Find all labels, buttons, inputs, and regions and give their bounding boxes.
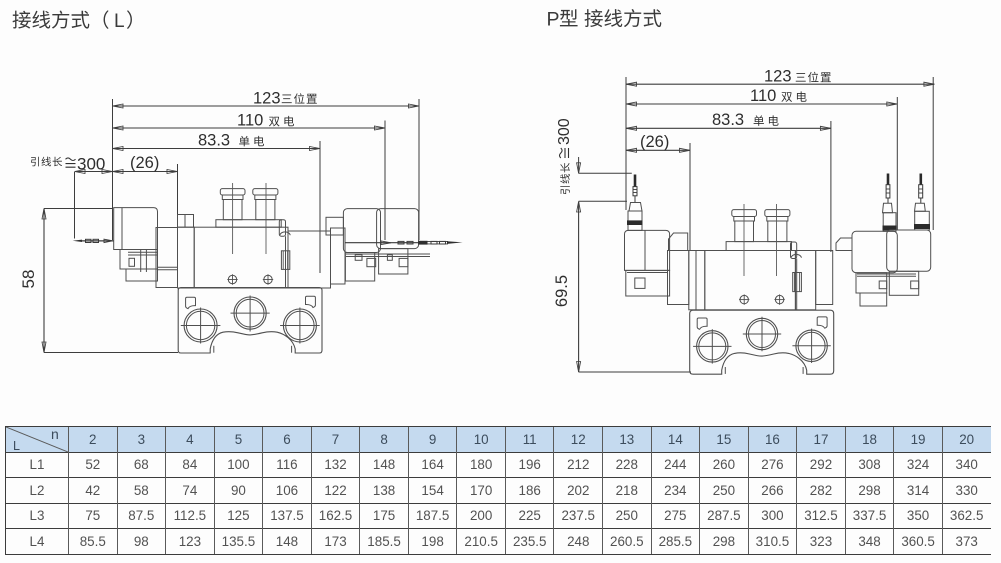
svg-text:58: 58 bbox=[19, 270, 38, 289]
svg-text:123: 123 bbox=[253, 90, 281, 108]
svg-text:300: 300 bbox=[556, 118, 573, 145]
svg-text:P: P bbox=[547, 9, 560, 31]
svg-text:300: 300 bbox=[77, 155, 105, 174]
svg-text:83.3: 83.3 bbox=[198, 132, 230, 150]
svg-text:L: L bbox=[13, 439, 20, 452]
svg-text:123: 123 bbox=[764, 68, 792, 86]
svg-text:L: L bbox=[114, 11, 125, 32]
svg-text:83.3: 83.3 bbox=[712, 111, 744, 129]
svg-text:(26): (26) bbox=[640, 133, 669, 151]
svg-text:110: 110 bbox=[750, 87, 776, 105]
svg-text:110: 110 bbox=[237, 112, 263, 130]
svg-text:69.5: 69.5 bbox=[553, 275, 571, 307]
svg-text:n: n bbox=[51, 427, 59, 442]
svg-text:(26): (26) bbox=[130, 154, 159, 172]
